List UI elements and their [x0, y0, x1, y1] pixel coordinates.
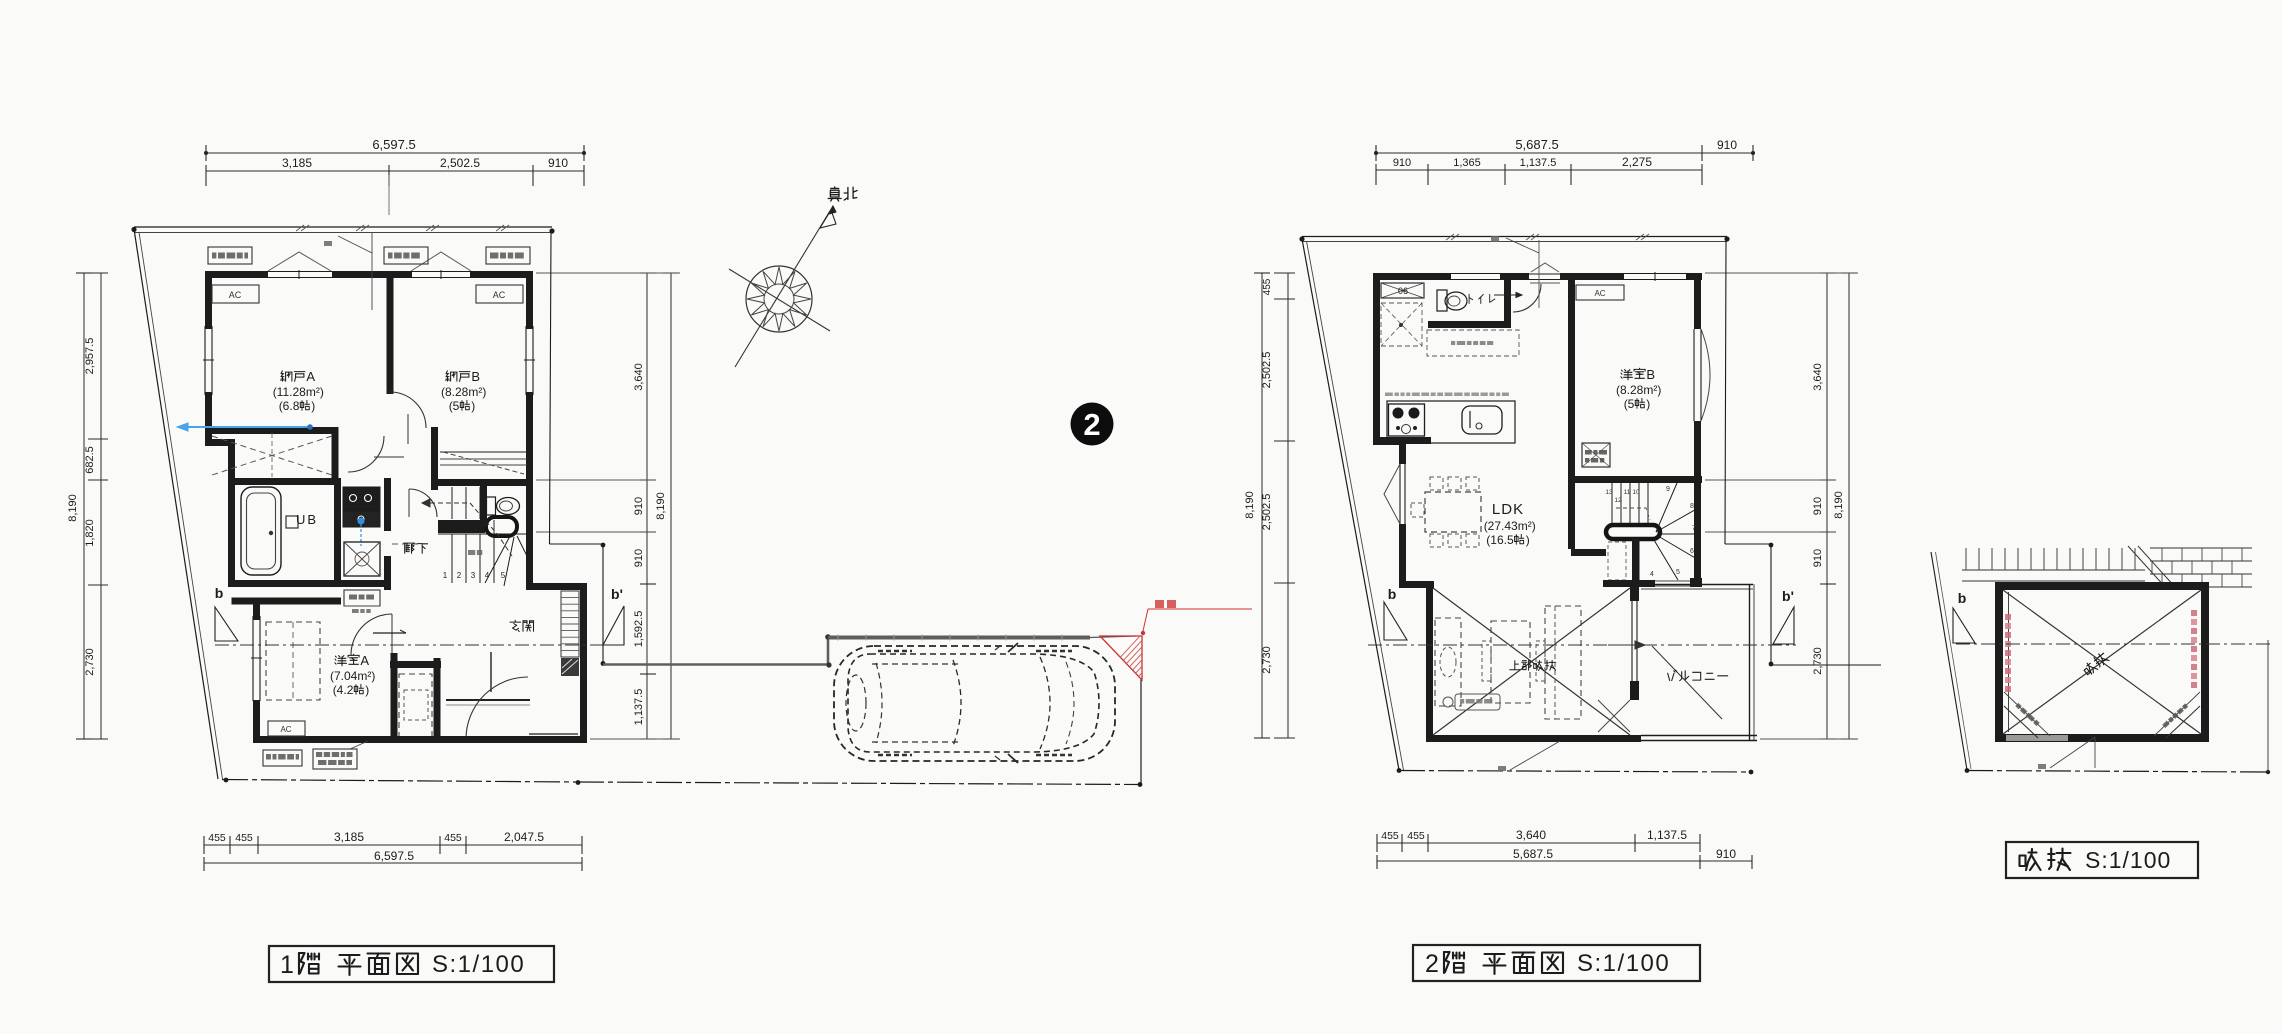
svg-text:UB: UB	[296, 512, 318, 527]
svg-text:1,365: 1,365	[1453, 157, 1481, 169]
svg-text:(16.5: (16.5	[1486, 533, 1514, 547]
svg-text:682.5: 682.5	[84, 446, 96, 474]
svg-text:S:1/100: S:1/100	[1577, 950, 1670, 977]
svg-text:AC: AC	[280, 725, 291, 734]
svg-text:3,185: 3,185	[282, 156, 312, 170]
svg-text:9: 9	[1666, 486, 1670, 493]
svg-text:A: A	[360, 653, 369, 668]
svg-text:1,137.5: 1,137.5	[1520, 157, 1557, 169]
svg-text:7: 7	[1692, 525, 1696, 532]
svg-text:910: 910	[633, 549, 645, 567]
svg-text:8,190: 8,190	[67, 494, 79, 522]
svg-text:S:1/100: S:1/100	[432, 951, 525, 978]
svg-text:6: 6	[1690, 548, 1694, 555]
svg-text:8,190: 8,190	[1833, 491, 1845, 519]
svg-text:A: A	[306, 369, 315, 384]
svg-text:910: 910	[1812, 549, 1824, 567]
svg-text:2,502.5: 2,502.5	[440, 156, 480, 170]
svg-text:13: 13	[1605, 489, 1613, 496]
svg-text:5: 5	[1676, 569, 1680, 576]
svg-text:910: 910	[633, 497, 645, 515]
svg-text:455: 455	[1381, 830, 1399, 842]
svg-text:2: 2	[457, 571, 462, 580]
svg-text:3: 3	[471, 571, 476, 580]
svg-text:2: 2	[1083, 407, 1100, 442]
svg-text:(8.28m²): (8.28m²)	[1616, 383, 1661, 397]
svg-text:4: 4	[1650, 571, 1654, 578]
svg-text:2,275: 2,275	[1622, 155, 1652, 169]
svg-text:3,640: 3,640	[1812, 363, 1824, 391]
svg-text:): )	[1526, 533, 1530, 547]
svg-text:): )	[471, 399, 475, 413]
svg-text:B: B	[1646, 367, 1655, 382]
svg-text:(27.43m²): (27.43m²)	[1484, 519, 1536, 533]
svg-text:b: b	[1958, 590, 1967, 606]
svg-text:11: 11	[1624, 489, 1631, 496]
svg-text:): )	[311, 399, 315, 413]
svg-text:910: 910	[1716, 847, 1736, 861]
svg-text:AC: AC	[493, 290, 506, 300]
svg-text:10: 10	[1632, 489, 1640, 496]
svg-text:2: 2	[1425, 950, 1439, 978]
svg-text:5,687.5: 5,687.5	[1513, 847, 1553, 861]
svg-text:910: 910	[1717, 138, 1737, 152]
svg-text:LDK: LDK	[1492, 501, 1524, 518]
svg-text:3,185: 3,185	[334, 830, 364, 844]
svg-text:(8.28m²): (8.28m²)	[441, 385, 486, 399]
svg-text:1,137.5: 1,137.5	[633, 689, 645, 726]
svg-text:1,820: 1,820	[84, 519, 96, 547]
svg-text:2,957.5: 2,957.5	[84, 338, 96, 375]
svg-text:5,687.5: 5,687.5	[1515, 137, 1558, 152]
svg-text:455: 455	[1262, 278, 1273, 295]
svg-text:): )	[365, 683, 369, 697]
svg-text:6,597.5: 6,597.5	[372, 137, 415, 152]
svg-text:8,190: 8,190	[655, 492, 667, 520]
svg-text:2,502.5: 2,502.5	[1261, 494, 1273, 531]
svg-text:b: b	[215, 585, 224, 601]
svg-text:(6.8: (6.8	[279, 399, 300, 413]
svg-text:06: 06	[1398, 286, 1408, 296]
svg-text:2,730: 2,730	[1261, 646, 1273, 674]
svg-text:8,190: 8,190	[1244, 491, 1256, 519]
svg-text:2,502.5: 2,502.5	[1261, 352, 1273, 389]
svg-text:S:1/100: S:1/100	[2085, 847, 2171, 873]
svg-text:(5: (5	[1624, 397, 1635, 411]
svg-text:B: B	[471, 369, 480, 384]
svg-text:): )	[1646, 397, 1650, 411]
svg-text:2,047.5: 2,047.5	[504, 830, 544, 844]
svg-text:3,640: 3,640	[633, 363, 645, 391]
svg-text:(11.28m²): (11.28m²)	[273, 385, 324, 399]
svg-text:AC: AC	[1594, 289, 1605, 298]
svg-text:1,592.5: 1,592.5	[633, 611, 645, 648]
svg-text:2,730: 2,730	[1812, 647, 1824, 675]
svg-text:b': b'	[611, 586, 623, 602]
svg-text:6,597.5: 6,597.5	[374, 849, 414, 863]
svg-text:b': b'	[1782, 588, 1794, 604]
svg-text:1,137.5: 1,137.5	[1647, 828, 1687, 842]
svg-text:910: 910	[548, 156, 568, 170]
svg-text:455: 455	[208, 832, 226, 844]
svg-text:8: 8	[1690, 503, 1694, 510]
svg-text:1: 1	[280, 951, 294, 979]
svg-text:AC: AC	[229, 290, 242, 300]
svg-text:(4.2: (4.2	[333, 683, 354, 697]
svg-text:2,730: 2,730	[84, 648, 96, 676]
svg-text:910: 910	[1393, 157, 1411, 169]
svg-text:12: 12	[1614, 497, 1622, 504]
svg-text:455: 455	[444, 832, 462, 844]
svg-text:455: 455	[1407, 830, 1425, 842]
svg-text:910: 910	[1812, 497, 1824, 515]
svg-text:(5: (5	[449, 399, 460, 413]
svg-text:1: 1	[443, 571, 448, 580]
svg-text:(7.04m²): (7.04m²)	[330, 669, 375, 683]
svg-text:b: b	[1388, 586, 1397, 602]
svg-text:455: 455	[235, 832, 253, 844]
svg-text:3,640: 3,640	[1516, 828, 1546, 842]
